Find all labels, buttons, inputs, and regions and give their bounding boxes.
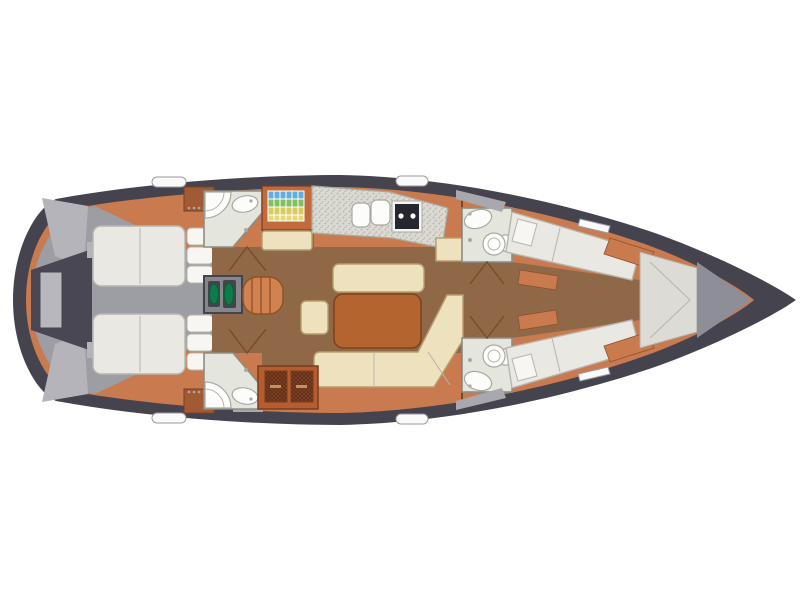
pillow bbox=[187, 334, 213, 351]
hanger-dot bbox=[188, 207, 191, 210]
galley-sink-icon bbox=[371, 200, 390, 225]
drain-dot bbox=[244, 228, 248, 232]
swim-ladder bbox=[40, 272, 62, 328]
door-handle bbox=[296, 385, 307, 388]
bow-infill bbox=[640, 252, 697, 348]
hanger-dot bbox=[193, 207, 196, 210]
nav-station bbox=[262, 186, 314, 250]
settee-top-bench bbox=[333, 264, 424, 292]
aft-berth-top bbox=[93, 226, 185, 286]
saloon-sole-lower bbox=[262, 345, 318, 368]
drain-dot bbox=[468, 358, 472, 362]
faucet-dot bbox=[249, 199, 252, 202]
counter-end-cabinet bbox=[436, 238, 462, 261]
toilet-icon bbox=[483, 233, 505, 255]
deck-hatch-icon bbox=[396, 176, 428, 186]
engine-hatch-green bbox=[225, 283, 234, 305]
hanger-dot bbox=[193, 391, 196, 394]
door-handle bbox=[270, 385, 281, 388]
galley-sink-icon bbox=[352, 203, 370, 227]
deck-hatch-icon bbox=[152, 177, 186, 187]
burner-dot bbox=[398, 213, 403, 218]
toilet-icon bbox=[483, 345, 505, 367]
floor-plan-canvas bbox=[0, 0, 800, 600]
burner-dot bbox=[410, 213, 415, 218]
deck-hatch-icon bbox=[396, 414, 428, 424]
chart-grid-icon bbox=[268, 191, 304, 221]
drain-dot bbox=[244, 368, 248, 372]
drain-dot bbox=[468, 238, 472, 242]
storage-cabinet bbox=[258, 366, 318, 409]
settee-stool bbox=[301, 301, 328, 334]
faucet-dot bbox=[468, 384, 471, 387]
engine-hatch-green bbox=[210, 284, 219, 304]
hanger-dot bbox=[198, 207, 201, 210]
boat-floor-plan bbox=[0, 0, 800, 600]
hanger-dot bbox=[198, 391, 201, 394]
aft-berth-bottom bbox=[93, 314, 185, 374]
companionway-steps bbox=[243, 277, 283, 314]
saloon-table bbox=[334, 294, 421, 348]
faucet-dot bbox=[468, 212, 471, 215]
pillow bbox=[187, 315, 213, 332]
pillow bbox=[187, 247, 213, 264]
nav-seat bbox=[262, 231, 312, 250]
hanger-dot bbox=[188, 391, 191, 394]
forward-corridor bbox=[462, 262, 514, 338]
deck-hatch-icon bbox=[152, 413, 186, 423]
faucet-dot bbox=[249, 397, 252, 400]
